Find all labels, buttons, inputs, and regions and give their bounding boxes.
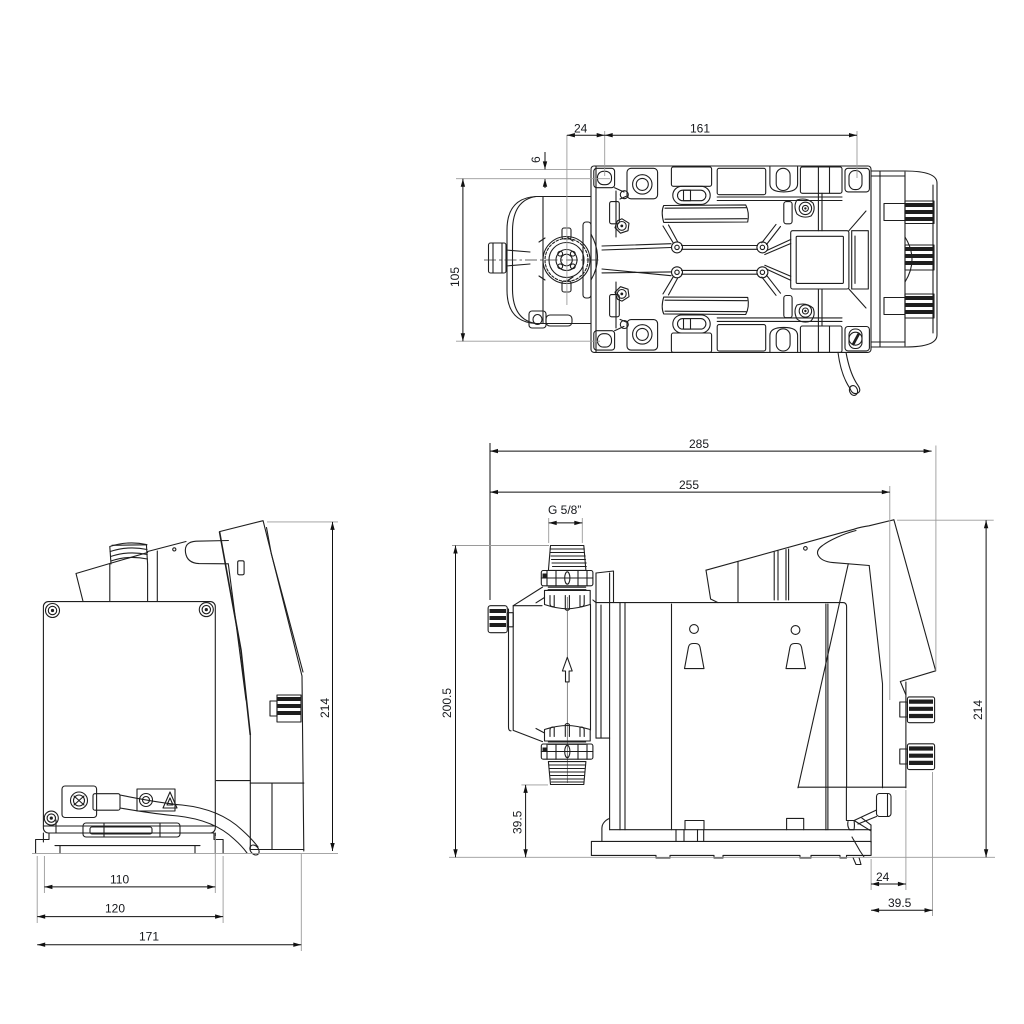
svg-text:39.5: 39.5 (888, 896, 912, 910)
svg-text:24: 24 (574, 122, 588, 136)
svg-text:255: 255 (679, 478, 699, 492)
svg-text:214: 214 (971, 700, 985, 720)
svg-text:105: 105 (448, 267, 462, 287)
svg-text:161: 161 (690, 122, 710, 136)
svg-text:214: 214 (318, 698, 332, 718)
svg-text:285: 285 (689, 437, 709, 451)
svg-text:120: 120 (105, 902, 125, 916)
svg-text:24: 24 (876, 870, 890, 884)
svg-text:110: 110 (110, 873, 129, 887)
svg-text:200.5: 200.5 (440, 688, 454, 718)
svg-text:171: 171 (139, 930, 159, 944)
svg-text:39.5: 39.5 (511, 810, 525, 834)
svg-text:G 5/8”: G 5/8” (548, 503, 581, 517)
svg-text:6: 6 (529, 156, 543, 163)
